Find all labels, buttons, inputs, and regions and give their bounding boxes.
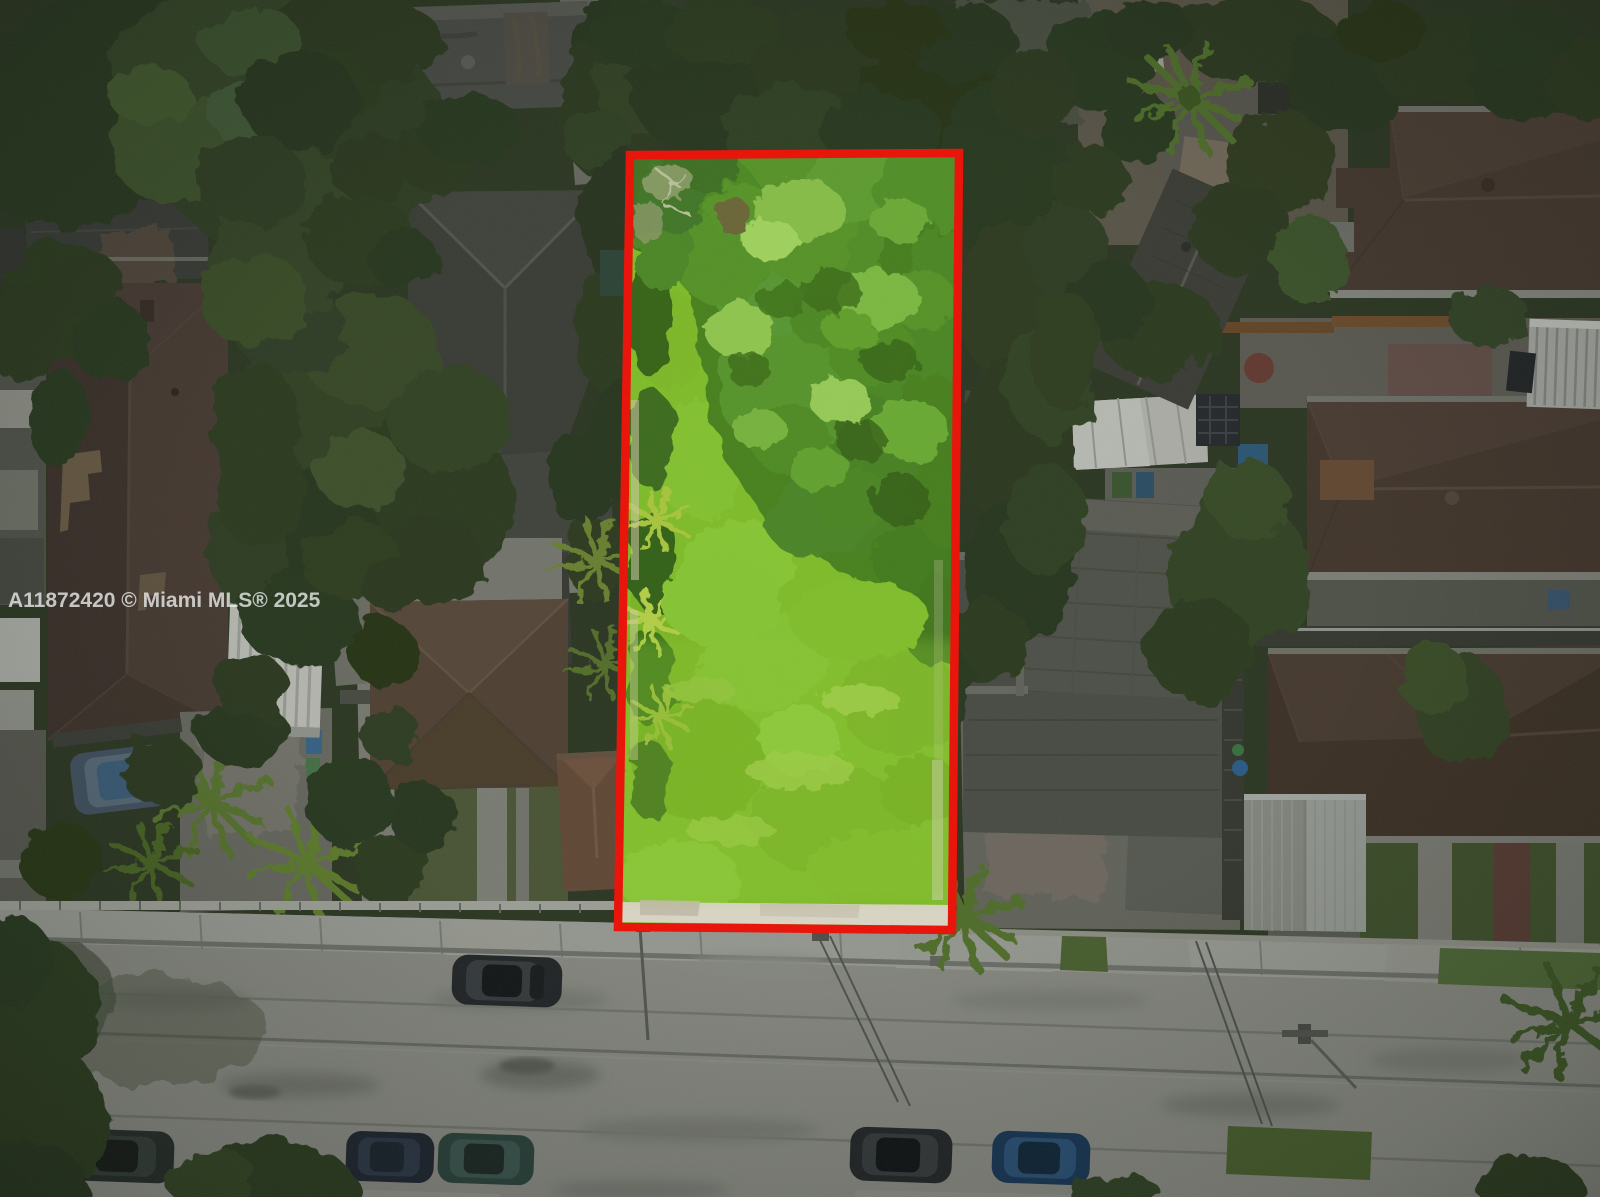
svg-text:A11872420 © Miami MLS® 2025: A11872420 © Miami MLS® 2025 — [8, 589, 321, 612]
